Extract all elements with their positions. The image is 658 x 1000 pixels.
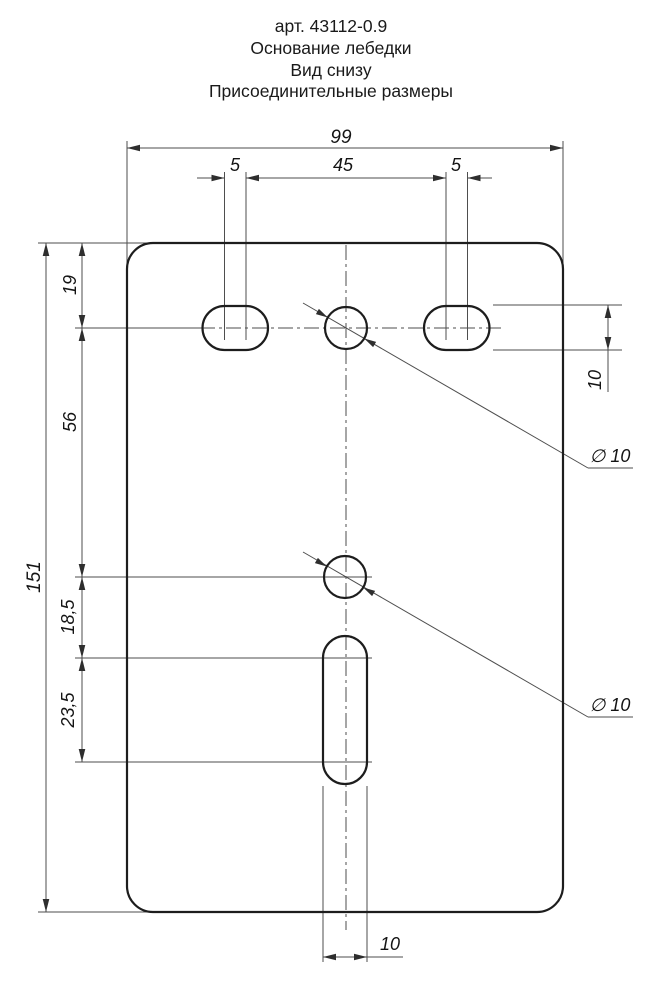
arrowhead (43, 243, 50, 256)
arrowhead (433, 175, 446, 182)
arrowhead (79, 315, 86, 328)
arrowhead (212, 175, 225, 182)
arrowhead (364, 339, 376, 348)
arrowhead (79, 328, 86, 341)
arrowhead (79, 658, 86, 671)
dim-label-top-edge-to-holes: 19 (60, 275, 80, 295)
dim-label-slot-width-bottom: 10 (380, 934, 400, 954)
dim-label-hole-diameter-top: ∅ 10 (590, 446, 631, 466)
arrowhead (605, 305, 612, 318)
technical-drawing: 99 5 45 5 19 56 18,5 23,5 151 10 ∅ 10 ∅ … (0, 0, 658, 1000)
dim-label-holes-to-middle: 56 (60, 411, 80, 432)
arrowhead (354, 954, 367, 961)
arrowhead (79, 645, 86, 658)
arrowhead (315, 558, 327, 567)
arrowhead (127, 145, 140, 152)
dim-label-middle-to-slot: 18,5 (58, 599, 78, 635)
diameter-leaders (303, 303, 633, 717)
extension-lines (38, 141, 622, 962)
dim-label-slot-height-right: 10 (585, 370, 605, 390)
arrowhead (79, 577, 86, 590)
arrowhead (323, 954, 336, 961)
drawing-sheet: арт. 43112-0.9 Основание лебедки Вид сни… (0, 0, 658, 1000)
arrowhead (550, 145, 563, 152)
arrowhead (43, 899, 50, 912)
arrowhead (79, 564, 86, 577)
arrowhead (363, 588, 375, 597)
dim-label-overall-width: 99 (330, 127, 352, 148)
dim-label-holes-span: 45 (333, 155, 354, 175)
dim-label-slot-centers-right: 5 (451, 155, 462, 175)
dim-label-slot-centers-length: 23,5 (58, 692, 78, 729)
dim-label-hole-diameter-middle: ∅ 10 (590, 695, 631, 715)
arrowhead (468, 175, 481, 182)
arrowhead (79, 749, 86, 762)
arrowhead (79, 243, 86, 256)
dim-label-overall-height: 151 (24, 561, 45, 593)
arrowhead (316, 309, 328, 318)
arrowhead (605, 337, 612, 350)
dim-label-slot-centers-left: 5 (230, 155, 241, 175)
dimension-labels: 99 5 45 5 19 56 18,5 23,5 151 10 ∅ 10 ∅ … (24, 127, 630, 954)
arrowhead (246, 175, 259, 182)
